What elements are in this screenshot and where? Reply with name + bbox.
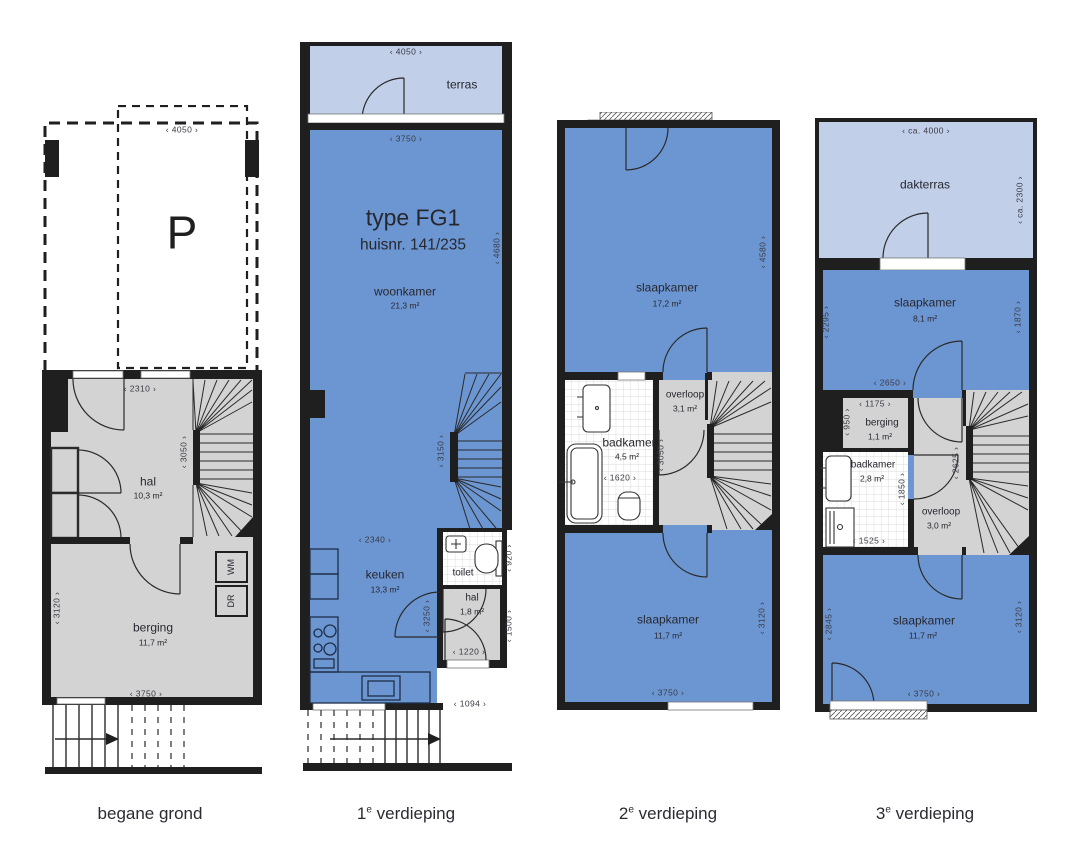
dim-stairs-3050: ‹ 3050 › bbox=[179, 436, 188, 469]
dim-mid-3050: ‹ 3050 › bbox=[656, 439, 665, 472]
room-label-slaapkamer-2: slaapkamer bbox=[637, 613, 699, 626]
parking-outline bbox=[45, 106, 259, 371]
room-label-woonkamer: woonkamer bbox=[374, 285, 436, 298]
dim-badkamer-1850: ‹ 1850 › bbox=[897, 473, 906, 506]
room-label-keuken: keuken bbox=[366, 568, 405, 581]
floorplan-1e-verdieping: ‹ 4050 › terras ‹ 3750 › type FG1 huisnr… bbox=[300, 42, 512, 777]
dim-hal-1220: ‹ 1220 › bbox=[453, 647, 486, 656]
room-area-hal: 10,3 m² bbox=[134, 491, 163, 500]
dim-dakterras-2300: ‹ ca. 2300 › bbox=[1015, 176, 1024, 224]
washer-label: WM bbox=[227, 559, 237, 575]
dim-left-2845: ‹ 2845 › bbox=[824, 608, 833, 641]
dim-hal-1500: ‹ 1500 › bbox=[504, 610, 513, 643]
room-area-berging: 11,7 m² bbox=[139, 638, 167, 647]
dim-right-3120: ‹ 3120 › bbox=[1014, 601, 1023, 634]
dim-bottom-3750: ‹ 3750 › bbox=[130, 689, 163, 698]
room-area-woonkamer: 21,3 m² bbox=[391, 301, 420, 310]
dim-badkamer-1620: ‹ 1620 › bbox=[604, 473, 637, 482]
dakterras bbox=[815, 118, 1037, 270]
dim-overloop-2625: ‹ 2625 › bbox=[951, 447, 960, 480]
entry-steps bbox=[303, 710, 512, 771]
french-balcony-bottom bbox=[830, 701, 927, 719]
floor-caption-begane-grond: begane grond bbox=[98, 804, 203, 824]
type-title: type FG1 bbox=[366, 205, 461, 230]
dim-dakterras-4000: ‹ ca. 4000 › bbox=[902, 126, 950, 135]
floorplan-3e-verdieping: ‹ ca. 4000 › dakterras ‹ ca. 2300 › slaa… bbox=[815, 112, 1037, 724]
room-area-overloop: 3,1 m² bbox=[673, 404, 697, 413]
huisnr-subtitle: huisnr. 141/235 bbox=[360, 236, 466, 253]
dim-keuken-3250: ‹ 3250 › bbox=[422, 600, 431, 633]
dim-bottom-3750: ‹ 3750 › bbox=[652, 688, 685, 697]
room-area-keuken: 13,3 m² bbox=[371, 585, 400, 594]
dim-bottom-3750: ‹ 3750 › bbox=[908, 689, 941, 698]
room-label-hal: hal bbox=[465, 593, 478, 604]
parking-mark: P bbox=[167, 208, 198, 259]
dim-parking-4050: ‹ 4050 › bbox=[166, 125, 199, 134]
room-label-slaapkamer-1: slaapkamer bbox=[894, 296, 956, 309]
room-area-hal: 1,8 m² bbox=[460, 607, 484, 616]
1e-verdieping-graphics bbox=[300, 42, 512, 777]
room-label-berging: berging bbox=[133, 621, 173, 634]
room-label-terras: terras bbox=[447, 78, 478, 91]
floor-caption-1e-verdieping: 1e verdieping bbox=[357, 804, 455, 824]
room-label-overloop: overloop bbox=[922, 507, 960, 518]
room-area-slaapkamer-2: 11,7 m² bbox=[909, 631, 937, 640]
room-label-overloop: overloop bbox=[666, 390, 704, 401]
floor-caption-2e-verdieping: 2e verdieping bbox=[619, 804, 717, 824]
dim-toilet-920: ‹ 920 › bbox=[504, 544, 513, 571]
room-area-badkamer: 2,8 m² bbox=[860, 474, 884, 483]
dim-stairs-3150: ‹ 3150 › bbox=[436, 435, 445, 468]
dim-left-3120: ‹ 3120 › bbox=[52, 592, 61, 625]
dim-top-3750: ‹ 3750 › bbox=[390, 134, 423, 143]
floor-caption-3e-verdieping: 3e verdieping bbox=[876, 804, 974, 824]
room-label-slaapkamer-2: slaapkamer bbox=[893, 614, 955, 627]
dim-keuken-2340: ‹ 2340 › bbox=[359, 535, 392, 544]
dim-slaapkamer-2650: ‹ 2650 › bbox=[874, 378, 907, 387]
room-area-slaapkamer-2: 11,7 m² bbox=[654, 631, 682, 640]
room-area-berging: 1,1 m² bbox=[868, 432, 892, 441]
dim-badkamer-1525: ‹ 1525 › bbox=[853, 536, 886, 545]
dim-right-4680: ‹ 4680 › bbox=[492, 232, 501, 265]
room-label-berging: berging bbox=[865, 418, 898, 429]
room-area-slaapkamer-1: 17,2 m² bbox=[653, 299, 682, 308]
room-label-hal: hal bbox=[140, 475, 156, 488]
dim-right-3120: ‹ 3120 › bbox=[757, 602, 766, 635]
dim-berging-1175: ‹ 1175 › bbox=[859, 399, 891, 408]
begane-grond-graphics bbox=[42, 105, 262, 775]
room-label-toilet: toilet bbox=[452, 568, 473, 579]
floorplan-page: ‹ 4050 › P ‹ 2310 › ‹ 3050 › hal 10,3 m²… bbox=[0, 0, 1080, 857]
dim-right-1870: ‹ 1870 › bbox=[1013, 301, 1022, 334]
room-label-dakterras: dakterras bbox=[900, 178, 950, 191]
floorplan-begane-grond: ‹ 4050 › P ‹ 2310 › ‹ 3050 › hal 10,3 m²… bbox=[42, 105, 262, 775]
dim-left-2295: ‹ 2295 › bbox=[821, 306, 830, 339]
room-label-badkamer: badkamer bbox=[602, 436, 655, 449]
room-area-slaapkamer-1: 8,1 m² bbox=[913, 314, 937, 323]
dim-right-4580: ‹ 4580 › bbox=[758, 236, 767, 269]
dim-berging-950: ‹ 950 › bbox=[842, 408, 851, 435]
dryer-label: DR bbox=[227, 595, 237, 608]
room-label-badkamer: badkamer bbox=[851, 460, 895, 471]
room-area-overloop: 3,0 m² bbox=[927, 521, 951, 530]
room-area-badkamer: 4,5 m² bbox=[615, 452, 639, 461]
entry-steps bbox=[45, 705, 262, 774]
floorplan-2e-verdieping: slaapkamer 17,2 m² ‹ 4580 › overloop 3,1… bbox=[557, 112, 782, 717]
room-label-slaapkamer-1: slaapkamer bbox=[636, 281, 698, 294]
dim-terras-4050: ‹ 4050 › bbox=[390, 47, 423, 56]
dim-entry-1094: ‹ 1094 › bbox=[454, 699, 487, 708]
dim-hal-2310: ‹ 2310 › bbox=[124, 384, 157, 393]
